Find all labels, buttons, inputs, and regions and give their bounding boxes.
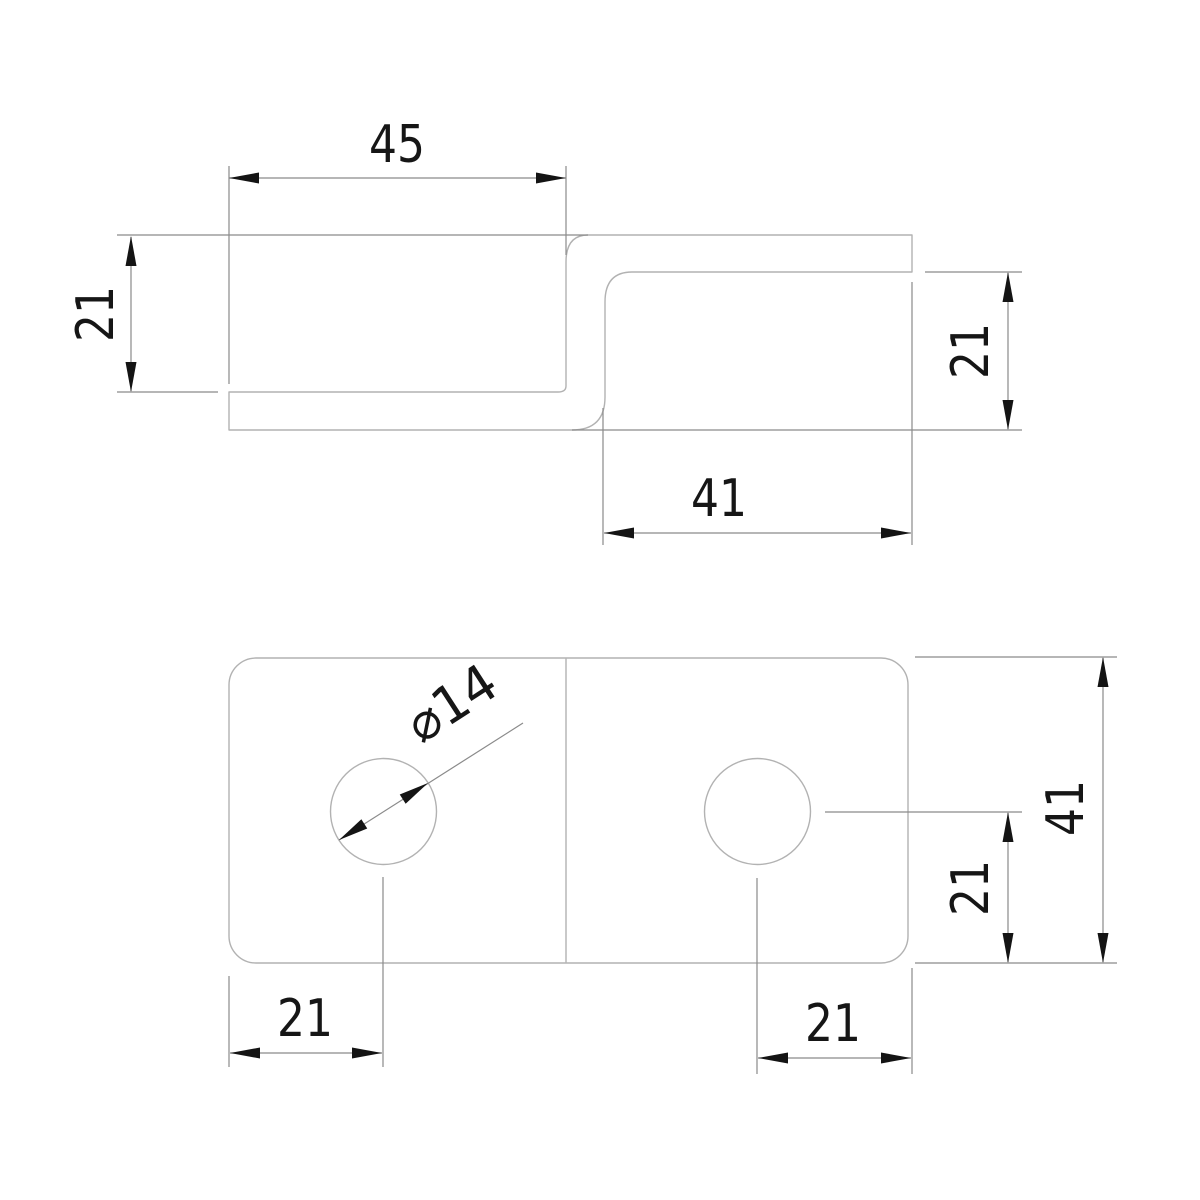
dim-left-offset-21-label: 21 — [66, 286, 126, 342]
dim-top-flange-45-label: 45 — [369, 115, 425, 175]
dim-right-hole-center-21-label: 21 — [941, 860, 1001, 916]
drawing-sheet — [0, 0, 1200, 1200]
dim-overall-width-41-label: 41 — [1036, 780, 1096, 836]
dim-right-hole-edge-21-label: 21 — [805, 994, 861, 1054]
dim-left-hole-edge-21-label: 21 — [277, 989, 333, 1049]
technical-drawing: 45212141⌀1421212141 — [0, 0, 1200, 1200]
drawing-canvas: 45212141⌀1421212141 — [0, 0, 1200, 1200]
dim-bottom-flange-41-label: 41 — [691, 469, 747, 529]
dim-right-offset-21-label: 21 — [941, 323, 1001, 379]
